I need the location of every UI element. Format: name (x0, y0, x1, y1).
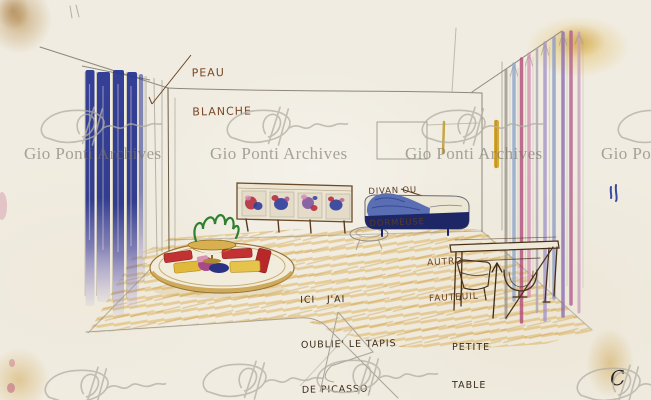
annotation-autro-fauteuil: AUTRO FAUTEUIL (426, 231, 481, 329)
right-curtain (494, 32, 583, 322)
sideboard-drawing (237, 183, 352, 233)
annotation-tapis-picasso: ICI J'AI OUBLIE' LE TAPIS DE PICASSO. (300, 261, 398, 400)
annotation-line: OUBLIE' LE TAPIS (301, 336, 397, 353)
door-handle (494, 120, 499, 168)
gio-ponti-interior-sketch-scan: PEAU BLANCHE DIVAN OU DORMEUSE ICI J'AI … (0, 0, 651, 400)
annotation-petite-table-bureau: PETITE TABLE BUREAU, (452, 317, 502, 400)
annotation-line: DE PICASSO. (302, 381, 398, 398)
annotation-line: ICI J'AI (300, 291, 396, 308)
annotation-peau-blanche: PEAU BLANCHE (191, 39, 252, 144)
annotation-line: TABLE (452, 380, 502, 393)
annotation-line: BLANCHE (192, 104, 252, 118)
annotation-line: DIVAN OU (368, 185, 424, 197)
annotation-line: PEAU (192, 65, 252, 79)
annotation-line: FAUTEUIL (429, 291, 479, 306)
blue-ink-mark (611, 185, 617, 201)
peau-blanche-leader (149, 55, 191, 104)
annotation-divan: DIVAN OU DORMEUSE (368, 164, 426, 250)
platter-table-drawing (150, 215, 294, 298)
annotation-line: AUTRO (427, 255, 477, 270)
annotation-line: PETITE (452, 342, 502, 355)
corner-letter-c: C (608, 365, 627, 391)
annotation-line: DORMEUSE (369, 217, 425, 229)
